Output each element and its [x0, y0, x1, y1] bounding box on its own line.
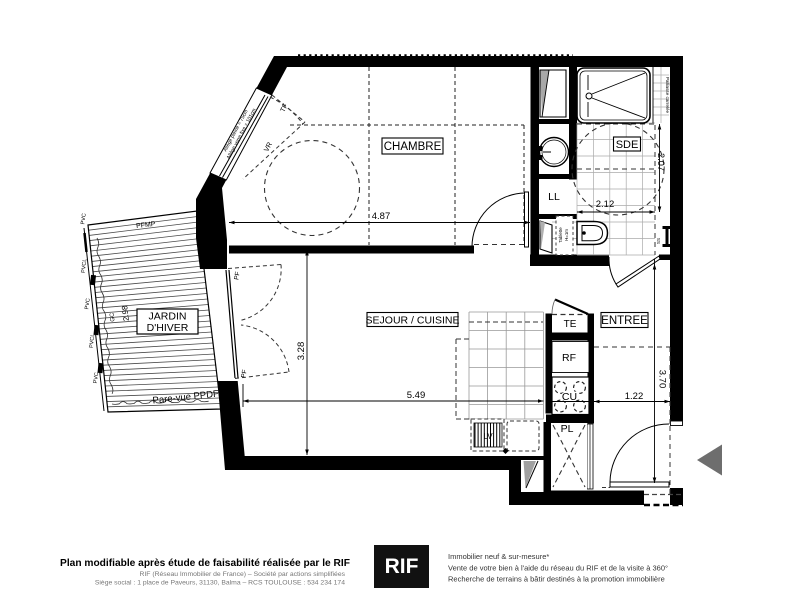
- svg-text:Siège social : 1 place de Pave: Siège social : 1 place de Paveurs, 31130…: [95, 580, 345, 587]
- svg-text:GC: GC: [109, 312, 116, 322]
- svg-text:RF: RF: [562, 352, 576, 364]
- svg-text:PF: PF: [233, 271, 241, 280]
- svg-text:Vente de votre bien à l'aide d: Vente de votre bien à l'aide du réseau d…: [448, 564, 668, 573]
- svg-text:Palliasse carrelée: Palliasse carrelée: [665, 77, 670, 114]
- svg-text:Immobilier neuf & sur-mesure*: Immobilier neuf & sur-mesure*: [448, 552, 549, 561]
- svg-text:5.49: 5.49: [407, 390, 426, 401]
- svg-text:SDE: SDE: [616, 139, 639, 151]
- svg-text:D'HIVER: D'HIVER: [147, 322, 189, 334]
- svg-text:TE: TE: [564, 319, 577, 330]
- svg-text:4.87: 4.87: [372, 211, 391, 222]
- svg-text:2.07: 2.07: [656, 153, 666, 171]
- svg-text:Plan modifiable après étude de: Plan modifiable après étude de faisabili…: [60, 558, 350, 569]
- svg-text:SEJOUR / CUISINE: SEJOUR / CUISINE: [366, 314, 460, 326]
- svg-text:3.70: 3.70: [657, 370, 668, 389]
- svg-text:Tablette: Tablette: [558, 227, 563, 243]
- svg-text:PF: PF: [240, 369, 248, 378]
- svg-text:3.28: 3.28: [296, 342, 307, 361]
- svg-text:Recherche de terrains à bâtir: Recherche de terrains à bâtir destinés à…: [448, 575, 665, 584]
- svg-text:RIF: RIF: [385, 555, 419, 578]
- svg-text:JARDIN: JARDIN: [149, 311, 187, 323]
- svg-text:ENTREE: ENTREE: [601, 315, 648, 327]
- svg-text:SS: SS: [656, 238, 661, 244]
- svg-text:RIF (Réseau Immobilier de Fran: RIF (Réseau Immobilier de France) – Soci…: [140, 571, 346, 578]
- svg-text:LL: LL: [548, 191, 560, 203]
- svg-text:1.22: 1.22: [625, 391, 644, 402]
- svg-text:2.12: 2.12: [596, 199, 615, 210]
- svg-text:2.98: 2.98: [120, 305, 131, 322]
- svg-text:LV: LV: [483, 432, 493, 441]
- svg-text:H=1m: H=1m: [564, 229, 569, 241]
- svg-text:CHAMBRE: CHAMBRE: [384, 141, 442, 153]
- svg-text:PL: PL: [561, 423, 574, 435]
